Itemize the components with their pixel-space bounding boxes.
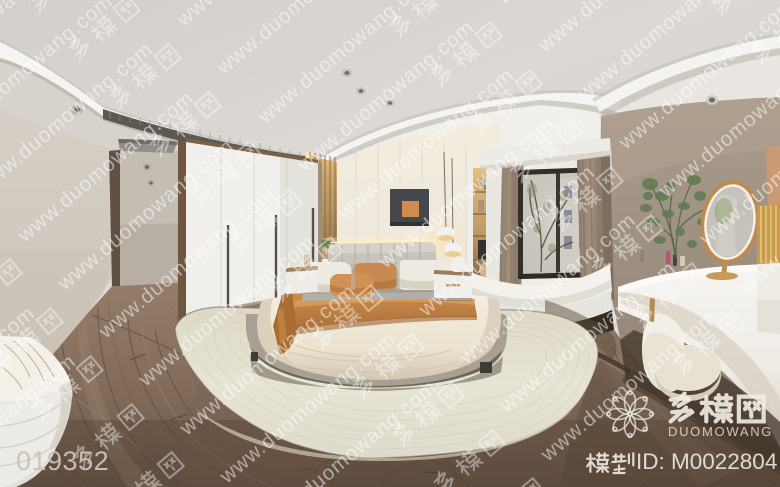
svg-text:www.duomowang.com: www.duomowang.com — [94, 182, 280, 343]
svg-text:www.duomowang.com: www.duomowang.com — [414, 160, 600, 321]
svg-text:www.duomowang.com: www.duomowang.com — [455, 208, 641, 369]
svg-text:www.duomowang.com: www.duomowang.com — [536, 305, 722, 466]
svg-text:www.duomowang.com: www.duomowang.com — [614, 0, 780, 154]
svg-text:www.duomowang.com: www.duomowang.com — [13, 86, 199, 247]
svg-text:www.duomowang.com: www.duomowang.com — [53, 134, 239, 295]
svg-text:www.duomowang.com: www.duomowang.com — [134, 230, 320, 391]
svg-text:www.duomowang.com: www.duomowang.com — [333, 63, 519, 224]
svg-text:www.duomowang.com: www.duomowang.com — [215, 327, 401, 487]
svg-text:ID: M0022804: ID: M0022804 — [636, 449, 777, 474]
svg-text:019352: 019352 — [16, 446, 109, 476]
svg-text:www.duomowang.com: www.duomowang.com — [293, 15, 479, 176]
svg-text:www.duomowang.com: www.duomowang.com — [175, 279, 361, 440]
svg-text:DUOMOWANG: DUOMOWANG — [668, 424, 773, 439]
svg-text:www.duomowang.com: www.duomowang.com — [374, 112, 560, 273]
svg-text:www.duomowang.com: www.duomowang.com — [495, 256, 681, 417]
